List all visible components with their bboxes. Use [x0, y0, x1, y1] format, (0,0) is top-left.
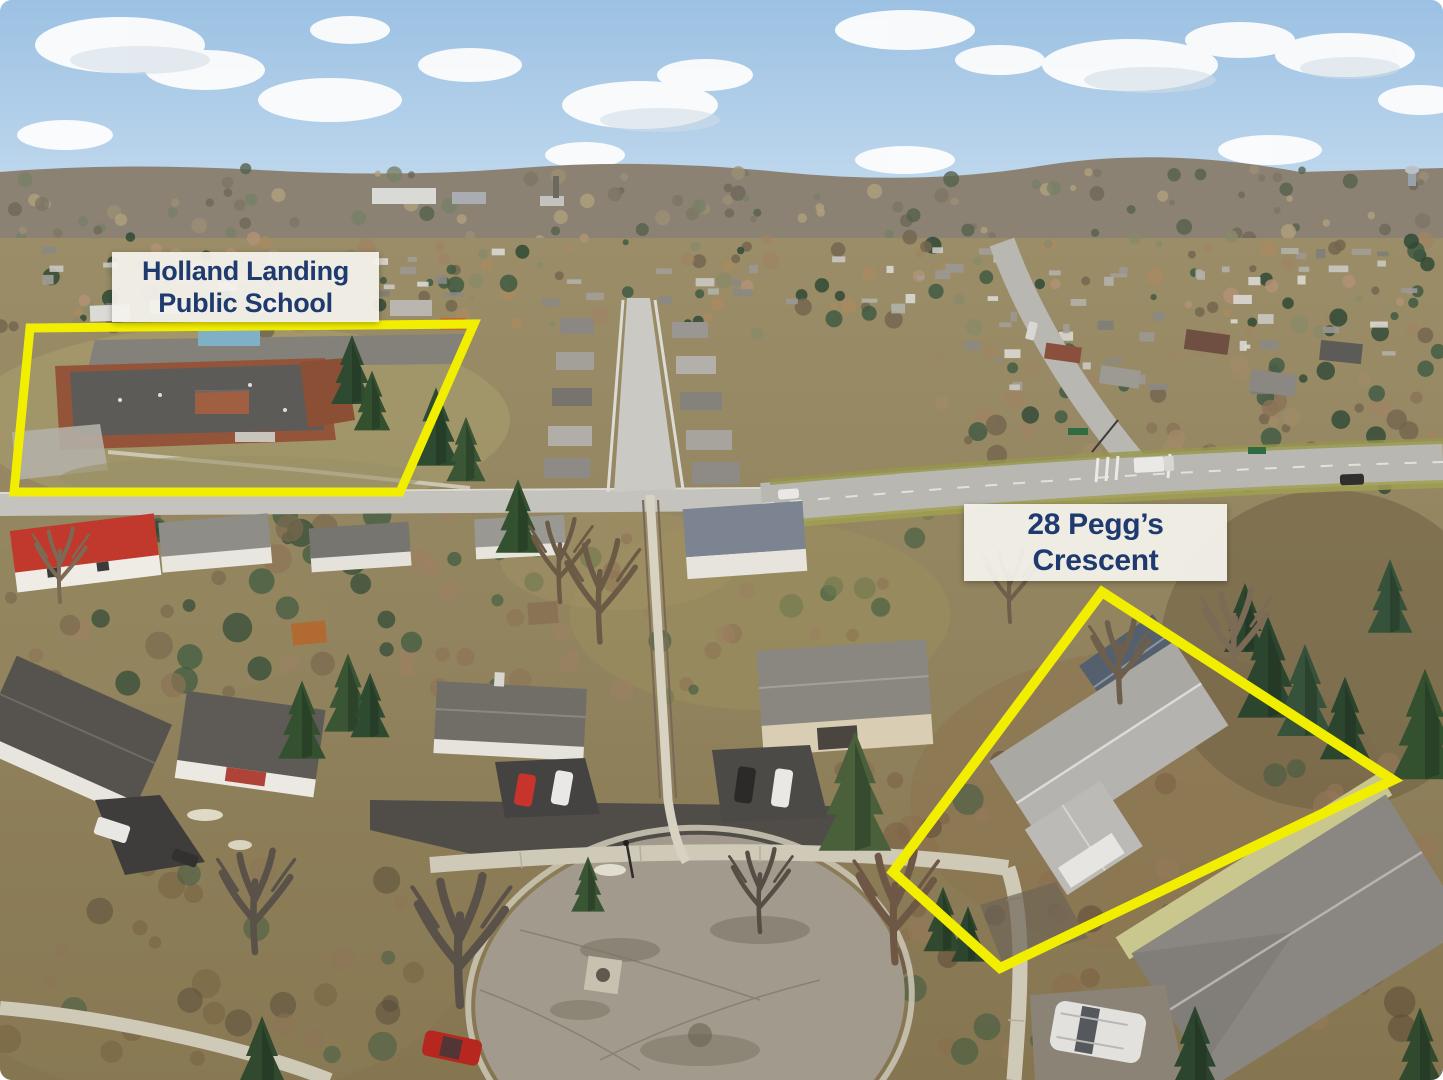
- property-annotation-label: 28 Pegg’s Crescent: [964, 504, 1227, 581]
- property-label-line1: 28 Pegg’s: [1027, 507, 1163, 543]
- blue-gray-roof-house: [683, 501, 808, 579]
- property-label-line2: Crescent: [1033, 543, 1159, 579]
- school-label-line2: Public School: [158, 287, 333, 319]
- school-label-line1: Holland Landing: [142, 255, 349, 287]
- beige-house: [756, 639, 933, 756]
- white-truck: [1134, 456, 1175, 473]
- school-annotation-label: Holland Landing Public School: [112, 252, 379, 322]
- aerial-photo: Holland Landing Public School 28 Pegg’s …: [0, 0, 1443, 1080]
